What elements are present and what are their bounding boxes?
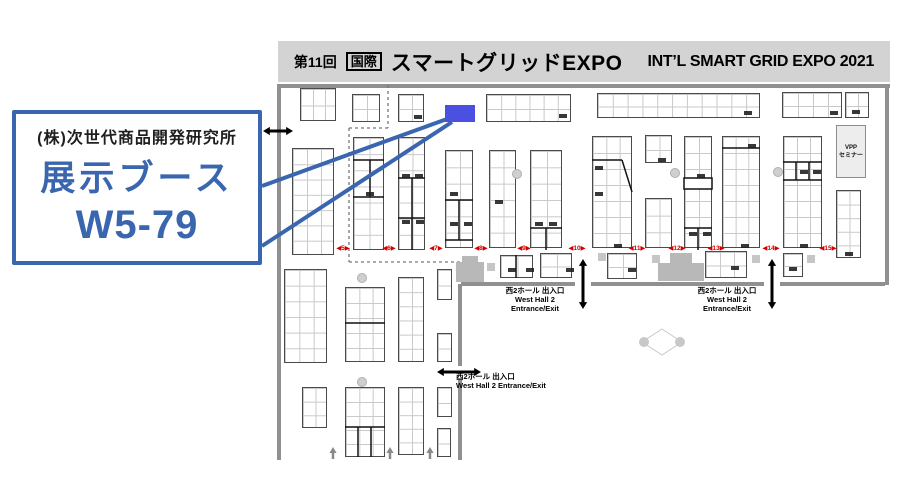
booth-label-mark <box>450 192 458 196</box>
booth-label-mark <box>508 268 516 272</box>
highlighted-booth-w5-79 <box>445 105 475 122</box>
booth-label-mark <box>748 144 756 148</box>
booth-label-mark <box>402 174 410 178</box>
booth <box>437 269 452 300</box>
aisle-number: ◀13▶ <box>703 244 729 252</box>
pillar-marker <box>807 255 815 263</box>
booth-label-mark <box>703 232 711 236</box>
booth-label-mark <box>800 170 808 174</box>
booth <box>302 387 327 428</box>
booth-label-mark <box>549 222 557 226</box>
booth <box>300 88 336 121</box>
booth <box>489 150 516 248</box>
booth-label-mark <box>526 268 534 272</box>
booth <box>645 198 672 248</box>
pillar-marker <box>487 263 495 271</box>
booth <box>783 253 803 277</box>
booth <box>845 92 869 118</box>
booth-label-mark <box>628 268 636 272</box>
entrance-label: 西2ホール 出入口West Hall 2Entrance/Exit <box>493 286 577 313</box>
booth-label-mark <box>450 222 458 226</box>
pillar-marker <box>652 255 660 263</box>
booth-label-mark <box>614 244 622 248</box>
vpp-seminar-box: VPPセミナー <box>836 125 866 178</box>
booth-label-mark <box>414 115 422 119</box>
aisle-number: ◀11▶ <box>624 244 650 252</box>
pillar-marker <box>752 255 760 263</box>
booth-label-mark <box>800 244 808 248</box>
floor-map-page: 第11回 国際 スマートグリッドEXPO INT’L SMART GRID EX… <box>0 0 919 498</box>
booth-label-mark <box>416 220 424 224</box>
booth-label-mark <box>697 174 705 178</box>
booth-label-mark <box>731 266 739 270</box>
booth-label-mark <box>566 268 574 272</box>
booth-label-mark <box>559 114 567 118</box>
booth-label-mark <box>595 166 603 170</box>
booth-label-mark <box>852 110 860 114</box>
booth <box>607 253 637 279</box>
booth <box>352 94 380 122</box>
booth-number: W5-79 <box>16 203 258 248</box>
booth <box>292 148 334 255</box>
entrance-structure <box>456 262 484 282</box>
aisle-number: ◀12▶ <box>664 244 690 252</box>
entrance-label: 西2ホール 出入口West Hall 2 Entrance/Exit <box>456 372 606 390</box>
aisle-number: ◀6▶ <box>376 244 402 252</box>
booth <box>437 387 452 417</box>
aisle-number: ◀7▶ <box>423 244 449 252</box>
booth-label-mark <box>495 200 503 204</box>
booth-label-mark <box>402 220 410 224</box>
booth <box>398 137 425 250</box>
booth-label-mark <box>366 192 374 196</box>
booth <box>437 333 452 362</box>
booth <box>284 269 327 363</box>
booth <box>597 93 760 118</box>
aisle-number: ◀8▶ <box>468 244 494 252</box>
booth <box>345 387 385 457</box>
aisle-number: ◀14▶ <box>758 244 784 252</box>
booth-label-mark <box>595 192 603 196</box>
booth <box>345 287 385 362</box>
pillar-marker <box>598 253 606 261</box>
booth <box>722 136 760 248</box>
aisle-number: ◀9▶ <box>511 244 537 252</box>
booth <box>530 150 562 248</box>
booth <box>540 253 572 278</box>
booth-label-mark <box>535 222 543 226</box>
booth-label-mark <box>845 252 853 256</box>
entrance-label: 西2ホール 出入口West Hall 2Entrance/Exit <box>685 286 769 313</box>
booth <box>783 136 822 248</box>
booth <box>437 428 451 457</box>
entrance-structure <box>462 256 478 263</box>
entrance-structure <box>658 263 704 281</box>
booth-label-mark <box>789 267 797 271</box>
booth <box>445 150 473 248</box>
aisle-number: ◀5▶ <box>330 244 356 252</box>
booth-label-mark <box>689 232 697 236</box>
aisle-number: ◀10▶ <box>564 244 590 252</box>
booth-label-mark <box>830 111 838 115</box>
booth <box>500 255 533 278</box>
booth-label-mark <box>744 111 752 115</box>
booth-label-mark <box>415 174 423 178</box>
entrance-structure <box>670 253 692 264</box>
aisle-number: ◀15▶ <box>815 244 841 252</box>
booth-callout: (株)次世代商品開発研究所 展示ブース W5-79 <box>12 110 262 265</box>
booth-label-mark <box>741 244 749 248</box>
booth-label-mark <box>813 170 821 174</box>
booth-label-mark <box>464 222 472 226</box>
booth-label-mark <box>658 158 666 162</box>
booth-callout-label: 展示ブース <box>16 150 258 201</box>
booth <box>398 387 424 455</box>
booth <box>705 251 747 278</box>
booth <box>398 277 424 362</box>
company-name: (株)次世代商品開発研究所 <box>16 124 258 148</box>
